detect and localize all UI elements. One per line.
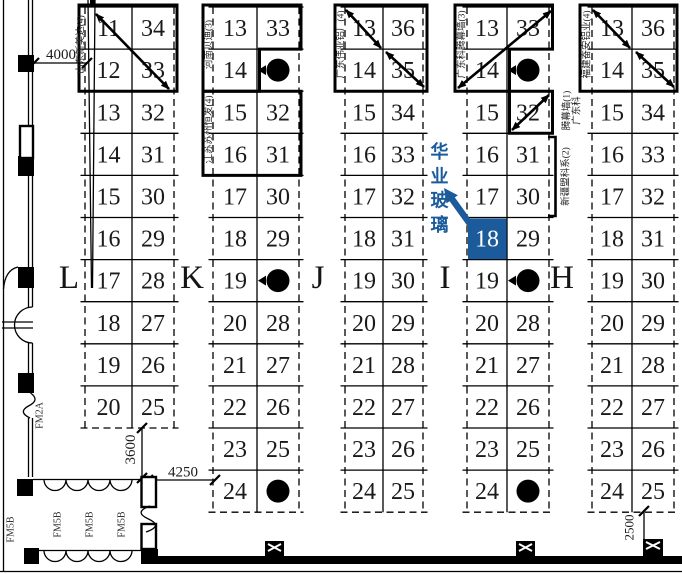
booth-number: 22 [600, 395, 624, 421]
row-letter-K: K [180, 260, 204, 296]
wall-column [18, 267, 34, 288]
booth-number: 18 [600, 227, 624, 253]
row-letter-L: L [59, 260, 79, 296]
highlight-company-char: 璃 [431, 214, 449, 235]
booth-number: 30 [266, 184, 290, 210]
booth-number: 30 [391, 269, 415, 295]
company-label: 新疆盟科系(2) [560, 147, 572, 206]
booth-number: 19 [600, 269, 624, 295]
booth-number: 29 [141, 227, 165, 253]
booth-number: 29 [391, 311, 415, 337]
booth-number: 24 [223, 479, 247, 505]
wall-column [18, 55, 34, 72]
company-label: 福建奋安铝业(4) [581, 10, 593, 78]
booth-number: 25 [516, 437, 540, 463]
booth-number: 28 [641, 353, 665, 379]
booth-number: 15 [97, 184, 121, 210]
company-label: 江苏苏州恒发(4) [203, 95, 215, 163]
booth-number: 21 [600, 353, 624, 379]
booth-number: 20 [600, 311, 624, 337]
booth-number: 26 [516, 395, 540, 421]
booth-number: 28 [266, 311, 290, 337]
booth-number: 15 [352, 100, 376, 126]
company-label: 广东伟业铝厂(4) [335, 10, 347, 78]
booth-number: 20 [97, 395, 121, 421]
booth-number: 28 [391, 353, 415, 379]
structural-column-icon [517, 269, 540, 292]
row-letter-I: I [440, 260, 451, 296]
booth-number: 24 [600, 479, 624, 505]
floor-plan: 1134123313321431153016291728182719262025… [0, 0, 682, 574]
booth-number: 27 [516, 353, 540, 379]
booth-number: 36 [641, 16, 665, 42]
booth-number: 20 [475, 311, 499, 337]
highlight-company-char: 业 [431, 166, 449, 186]
booth-number: 24 [352, 479, 376, 505]
booth-number: 23 [600, 437, 624, 463]
booth-number: 21 [223, 353, 247, 379]
dimension-text: 4000 [46, 47, 76, 63]
booth-number: 26 [141, 353, 165, 379]
booth-number: 13 [223, 16, 247, 42]
door-frame [142, 477, 157, 507]
row-letter-J: J [312, 260, 325, 296]
booth-number: 25 [641, 479, 665, 505]
booth-number: 12 [97, 58, 121, 84]
booth-number: 32 [641, 184, 665, 210]
booth-number: 34 [391, 100, 415, 126]
booth-number: 28 [516, 311, 540, 337]
booth-number: 18 [352, 227, 376, 253]
bottom-wall [150, 556, 682, 564]
booth-number: 33 [641, 142, 665, 168]
booth-number: 16 [97, 227, 121, 253]
booth-number: 30 [141, 184, 165, 210]
booth-number: 17 [223, 184, 247, 210]
booth-number: 22 [475, 395, 499, 421]
booth-number: 14 [352, 58, 376, 84]
booth-number: 30 [641, 269, 665, 295]
wall-column [24, 548, 39, 564]
booth-number: 19 [223, 269, 247, 295]
booth-number: 22 [352, 395, 376, 421]
booth-number: 29 [266, 227, 290, 253]
booth-number: 19 [475, 269, 499, 295]
highlight-company-char: 华 [431, 141, 449, 162]
booth-number: 29 [516, 227, 540, 253]
structural-column-icon [267, 269, 290, 292]
booth-number: 28 [141, 269, 165, 295]
booth-number: 29 [641, 311, 665, 337]
booth-number: 31 [516, 142, 540, 168]
booth-number: 17 [600, 184, 624, 210]
booth-number: 19 [97, 353, 121, 379]
booth-number: 15 [223, 100, 247, 126]
booth-number: 19 [352, 269, 376, 295]
booth-number: 21 [475, 353, 499, 379]
booth-number: 16 [600, 142, 624, 168]
booth-number: 33 [266, 16, 290, 42]
booth-number: 25 [141, 395, 165, 421]
structural-column-icon [267, 59, 290, 82]
booth-number: 31 [641, 227, 665, 253]
booth-number: 35 [641, 58, 665, 84]
booth-number: 27 [266, 353, 290, 379]
booth-number: 31 [391, 227, 415, 253]
door-frame [20, 126, 33, 158]
booth-number: 23 [223, 437, 247, 463]
booth-number: 32 [141, 100, 165, 126]
booth-number: 18 [475, 227, 499, 253]
booth-number: 14 [97, 142, 121, 168]
row-letter-H: H [550, 260, 574, 296]
dimension-text: 4250 [168, 465, 198, 481]
booth-number: 14 [223, 58, 247, 84]
fire-door-tag-FM2A: FM2A [35, 401, 46, 428]
booth-number: 23 [352, 437, 376, 463]
wall-column [17, 479, 33, 496]
company-label: 腾幕墙(1) [561, 91, 573, 131]
booth-number: 27 [391, 395, 415, 421]
booth-number: 32 [391, 184, 415, 210]
booth-number: 27 [641, 395, 665, 421]
booth-number: 21 [352, 353, 376, 379]
booth-number: 23 [475, 437, 499, 463]
wall-column [90, 0, 95, 6]
booth-number: 15 [475, 100, 499, 126]
booth-number: 18 [223, 227, 247, 253]
booth-number: 16 [352, 142, 376, 168]
booth-number: 17 [97, 269, 121, 295]
booth-number: 20 [223, 311, 247, 337]
fire-door-tag-FM5B: FM5B [6, 516, 17, 542]
booth-number: 32 [266, 100, 290, 126]
booth-number: 35 [391, 58, 415, 84]
booth-number: 13 [97, 100, 121, 126]
fire-door-tag-FM5B: FM5B [85, 511, 96, 537]
booth-number: 24 [475, 479, 499, 505]
booth-number: 16 [223, 142, 247, 168]
booth-number: 31 [141, 142, 165, 168]
company-label: 河南贝迪(3) [203, 20, 215, 69]
booth-number: 27 [141, 311, 165, 337]
booth-number: 26 [266, 395, 290, 421]
booth-number: 31 [266, 142, 290, 168]
booth-number: 34 [141, 16, 165, 42]
structural-column-icon [267, 480, 290, 503]
company-label: 广东科腾幕墙(3) [456, 10, 468, 78]
booth-number: 17 [475, 184, 499, 210]
floor-plan-canvas: 1134123313321431153016291728182719262025… [0, 0, 682, 574]
structural-column-icon [517, 480, 540, 503]
booth-number: 16 [475, 142, 499, 168]
booth-number: 17 [352, 184, 376, 210]
booth-number: 20 [352, 311, 376, 337]
booth-number: 25 [266, 437, 290, 463]
dimension-text: 2500 [622, 515, 637, 541]
booth-number: 26 [641, 437, 665, 463]
booth-number: 22 [223, 395, 247, 421]
booth-number: 30 [516, 184, 540, 210]
wall-column [18, 373, 34, 393]
booth-number: 33 [391, 142, 415, 168]
booth-number: 14 [600, 58, 624, 84]
booth-number: 26 [391, 437, 415, 463]
booth-number: 15 [600, 100, 624, 126]
booth-number: 34 [641, 100, 665, 126]
structural-column-icon [517, 59, 540, 82]
fire-door-tag-FM5B: FM5B [53, 511, 64, 537]
booth-number: 25 [391, 479, 415, 505]
dimension-text: 3600 [123, 435, 139, 465]
booth-number: 13 [475, 16, 499, 42]
fire-door-tag-FM5B: FM5B [117, 511, 128, 537]
booth-number: 36 [391, 16, 415, 42]
booth-number: 18 [97, 311, 121, 337]
